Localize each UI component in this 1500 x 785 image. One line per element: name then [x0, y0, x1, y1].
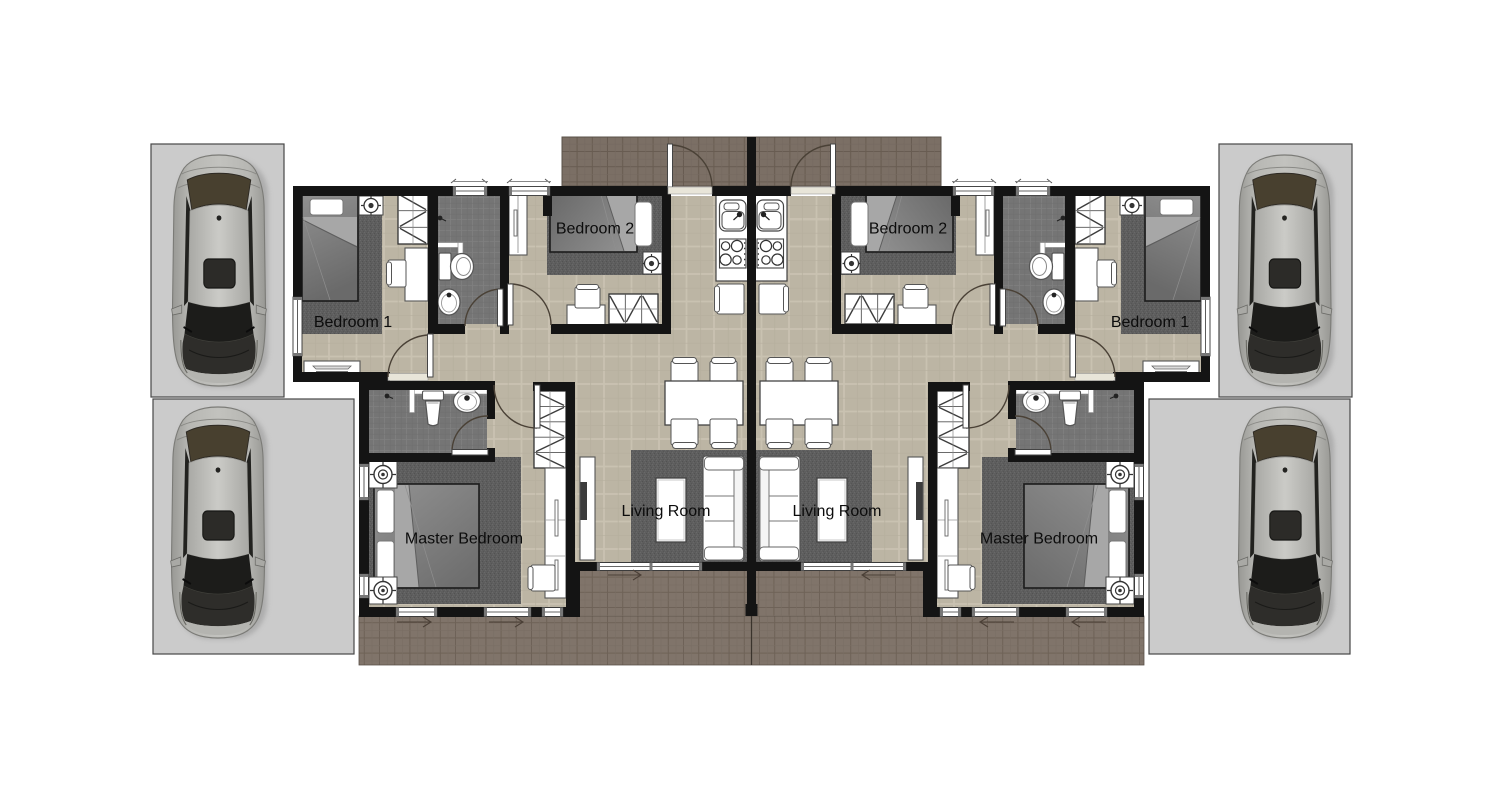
svg-text:Master Bedroom: Master Bedroom [405, 531, 523, 548]
svg-text:Bedroom 1: Bedroom 1 [1111, 314, 1189, 331]
svg-text:Bedroom 2: Bedroom 2 [869, 221, 947, 238]
svg-text:Living Room: Living Room [793, 503, 882, 520]
svg-text:Master Bedroom: Master Bedroom [980, 531, 1098, 548]
svg-text:Living Room: Living Room [622, 503, 711, 520]
svg-text:Bedroom 1: Bedroom 1 [314, 314, 392, 331]
svg-text:Bedroom 2: Bedroom 2 [556, 221, 634, 238]
